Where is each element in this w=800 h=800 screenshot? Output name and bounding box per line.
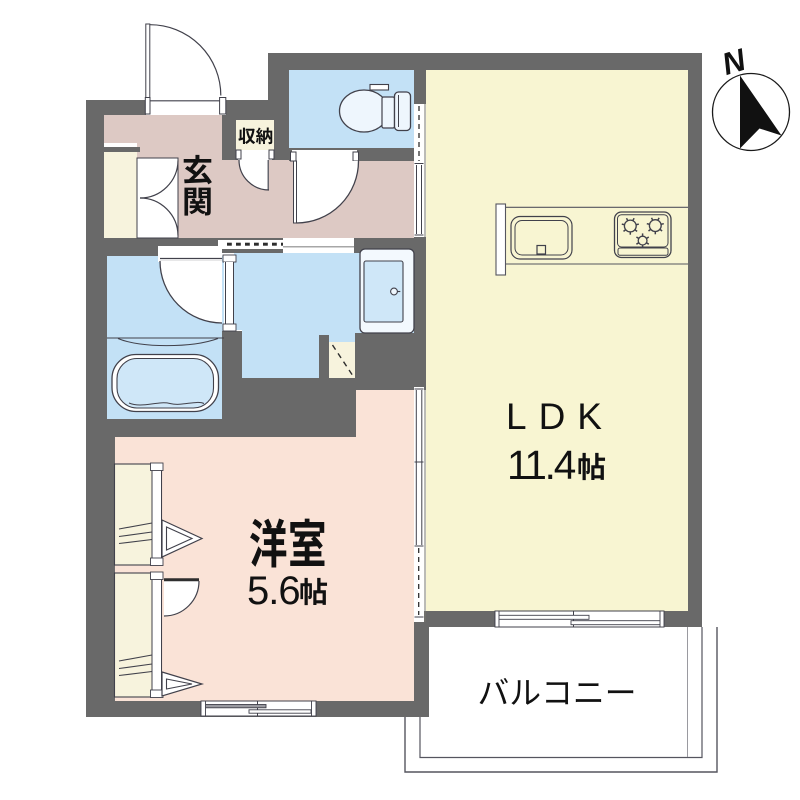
svg-text:LDK: LDK: [506, 396, 614, 437]
svg-text:5.6: 5.6: [247, 569, 300, 613]
svg-text:11.4: 11.4: [507, 442, 576, 488]
